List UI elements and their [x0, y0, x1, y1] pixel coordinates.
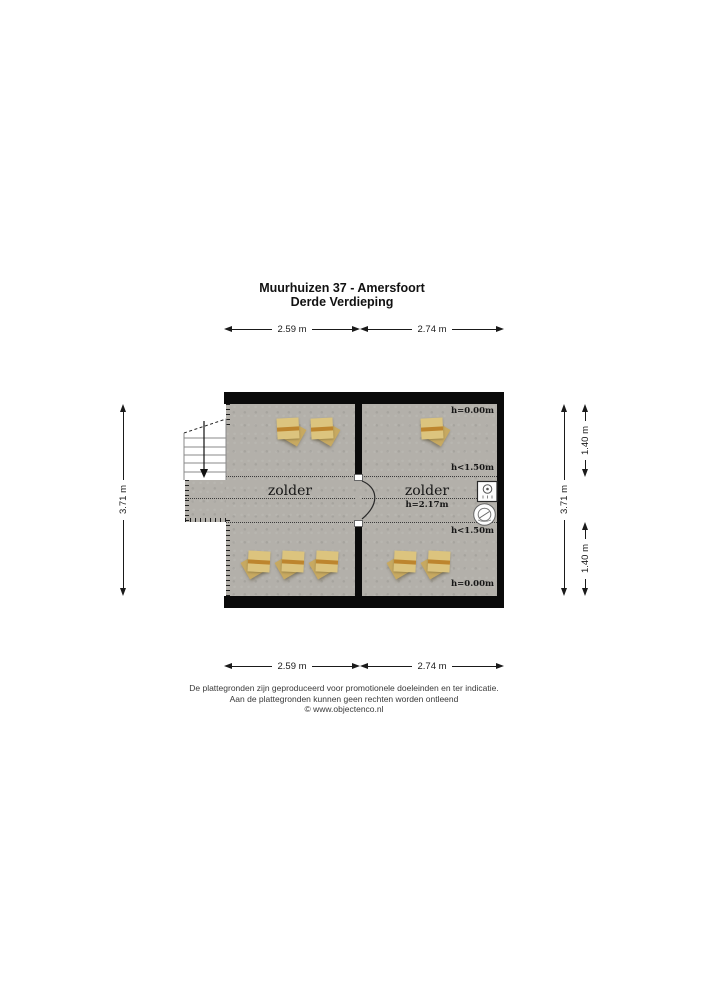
- dimension-bottom-left: 2.59 m: [224, 660, 360, 672]
- open-edge-ticks: [185, 518, 226, 522]
- room-label-left: zolder: [250, 483, 330, 499]
- dimension-label: 3.71 m: [559, 480, 570, 519]
- roof-window-icon: [311, 550, 338, 579]
- arrow-down-icon: [582, 469, 588, 477]
- wall-middle-lower: [355, 527, 362, 596]
- arrow-down-icon: [561, 588, 567, 596]
- ceiling-height-note: h=2.17m: [387, 500, 467, 510]
- roof-window-icon: [389, 550, 416, 579]
- stair-landing: [185, 480, 226, 522]
- dimension-right-outer-bottom: 1.40 m: [578, 522, 592, 596]
- height-label-top: h=0.00m: [414, 406, 494, 416]
- wall-bottom: [224, 596, 504, 608]
- page-subtitle: Derde Verdieping: [142, 295, 542, 309]
- arrow-up-icon: [120, 404, 126, 412]
- roof-window-icon: [311, 417, 338, 446]
- roof-window-icon: [277, 417, 304, 446]
- arrow-left-icon: [224, 663, 232, 669]
- boiler-icon: [478, 482, 498, 502]
- roof-window-icon: [421, 417, 448, 446]
- arrow-left-icon: [224, 326, 232, 332]
- dimension-label: 1.40 m: [580, 421, 591, 460]
- arrow-up-icon: [582, 522, 588, 530]
- wall-middle-upper: [355, 404, 362, 474]
- dimension-top-right: 2.74 m: [360, 323, 504, 335]
- height-label-lower: h<1.50m: [414, 526, 494, 536]
- dimension-label: 2.74 m: [412, 661, 451, 672]
- copyright: © www.objectenco.nl: [104, 704, 584, 715]
- height-label-bottom: h=0.00m: [414, 579, 494, 589]
- room-label-right: zolder: [387, 483, 467, 499]
- height-label-upper: h<1.50m: [414, 463, 494, 473]
- arrow-down-icon: [582, 588, 588, 596]
- open-edge-ticks: [226, 520, 230, 596]
- disclaimer-line1: De plattegronden zijn geproduceerd voor …: [104, 683, 584, 694]
- dimension-label: 2.59 m: [272, 324, 311, 335]
- dimension-label: 1.40 m: [580, 539, 591, 578]
- open-edge-ticks: [185, 480, 189, 522]
- dimension-top-left: 2.59 m: [224, 323, 360, 335]
- disclaimer: De plattegronden zijn geproduceerd voor …: [104, 683, 584, 715]
- dimension-label: 3.71 m: [118, 480, 129, 519]
- arrow-left-icon: [360, 663, 368, 669]
- arrow-right-icon: [352, 326, 360, 332]
- dimension-label: 2.59 m: [272, 661, 311, 672]
- height-contour-line: [226, 522, 355, 523]
- door-swing-icon: [361, 477, 385, 523]
- ventilation-icon: [474, 504, 496, 526]
- roof-window-icon: [277, 550, 304, 579]
- page-title: Muurhuizen 37 - Amersfoort: [142, 281, 542, 295]
- dimension-label: 2.74 m: [412, 324, 451, 335]
- fixtures: [471, 478, 501, 528]
- arrow-up-icon: [561, 404, 567, 412]
- arrow-up-icon: [582, 404, 588, 412]
- arrow-right-icon: [496, 326, 504, 332]
- dimension-left-side: 3.71 m: [116, 404, 130, 596]
- disclaimer-line2: Aan de plattegronden kunnen geen rechten…: [104, 694, 584, 705]
- staircase-down-icon: [183, 414, 227, 480]
- dimension-bottom-right: 2.74 m: [360, 660, 504, 672]
- roof-window-icon: [243, 550, 270, 579]
- wall-top: [224, 392, 504, 404]
- arrow-left-icon: [360, 326, 368, 332]
- dimension-right-outer-top: 1.40 m: [578, 404, 592, 477]
- arrow-down-icon: [120, 588, 126, 596]
- arrow-right-icon: [496, 663, 504, 669]
- arrow-right-icon: [352, 663, 360, 669]
- height-contour-line: [226, 476, 355, 477]
- roof-window-icon: [423, 550, 450, 579]
- dimension-right-side: 3.71 m: [557, 404, 571, 596]
